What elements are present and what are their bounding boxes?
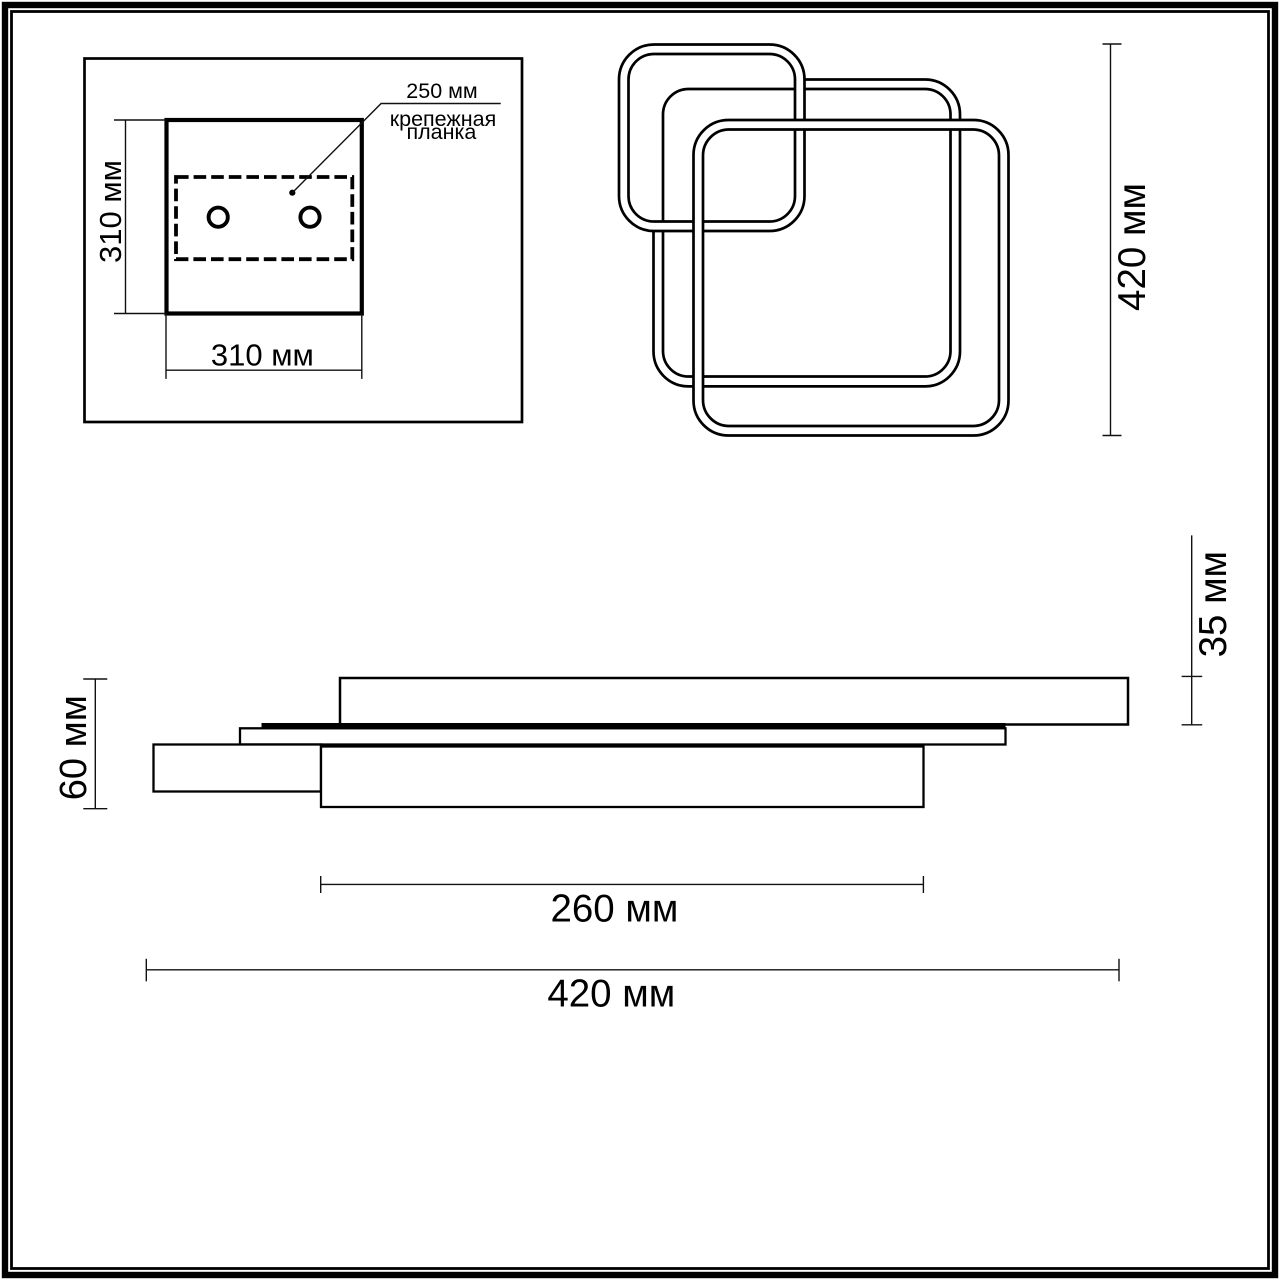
svg-text:35 мм: 35 мм: [1192, 551, 1235, 657]
svg-text:планка: планка: [406, 120, 476, 144]
svg-text:250 мм: 250 мм: [406, 79, 477, 103]
svg-text:60 мм: 60 мм: [53, 695, 95, 800]
svg-text:420 мм: 420 мм: [547, 972, 675, 1015]
svg-text:260 мм: 260 мм: [550, 887, 678, 930]
svg-text:420 мм: 420 мм: [1111, 183, 1154, 311]
svg-text:310 мм: 310 мм: [211, 338, 314, 373]
svg-text:310 мм: 310 мм: [93, 160, 128, 263]
